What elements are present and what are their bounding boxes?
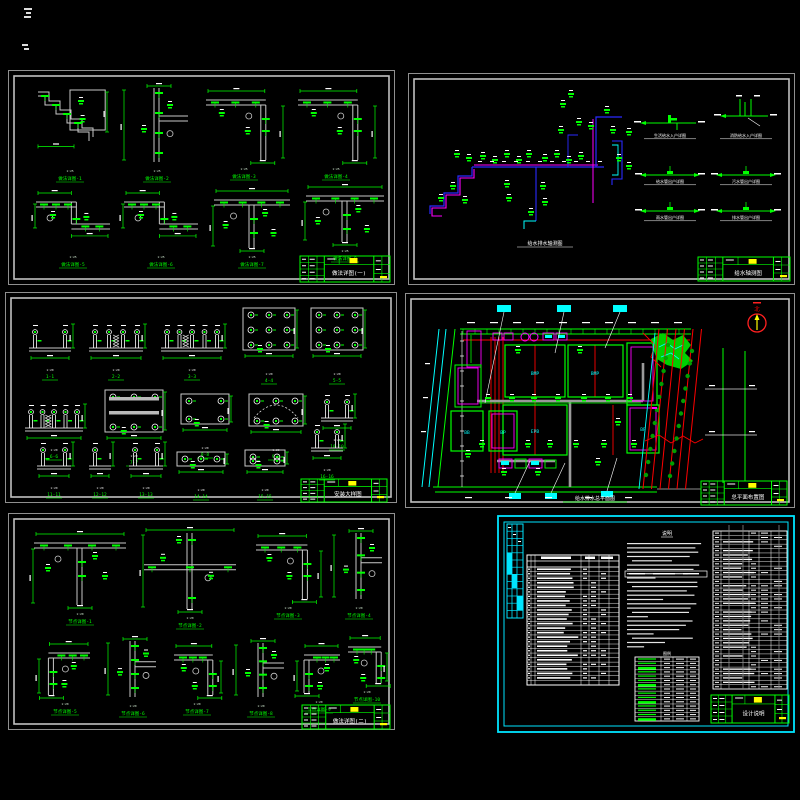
svg-text:节点详图-6: 节点详图-6 bbox=[121, 710, 145, 717]
detail-thumbnail: 1:25做法详图-5 bbox=[32, 190, 111, 268]
svg-text:污水管出户详图: 污水管出户详图 bbox=[732, 178, 760, 184]
svg-text:6-6: 6-6 bbox=[50, 454, 58, 460]
detail-thumbnail: 1:202-2 bbox=[89, 324, 147, 380]
detail-thumbnail: 1:25做法详图-4 bbox=[298, 88, 377, 180]
svg-text:BB: BB bbox=[464, 430, 470, 436]
svg-text:设计说明: 设计说明 bbox=[743, 710, 766, 718]
svg-text:1:25: 1:25 bbox=[341, 249, 348, 253]
svg-text:1:20: 1:20 bbox=[197, 488, 204, 492]
detail-thumbnail: 1:20节点详图-9 bbox=[294, 643, 341, 713]
detail-thumbnail: 1:208-8 bbox=[181, 394, 233, 458]
detail-thumbnail: 1:25做法详图-1 bbox=[38, 90, 109, 182]
detail-thumbnail: 1:20节点详图-8 bbox=[233, 638, 285, 717]
svg-text:EPB: EPB bbox=[531, 429, 539, 435]
pipe-mini-diagram: 消防给水入户详图 bbox=[714, 95, 777, 139]
title-block[interactable]: 设计说明 bbox=[711, 695, 789, 723]
sheet-design-notes[interactable]: 说明图例设计说明 bbox=[498, 516, 794, 732]
svg-text:BMP: BMP bbox=[591, 371, 599, 377]
svg-text:1:20: 1:20 bbox=[76, 612, 83, 616]
sheet-structural-details-2[interactable]: 1:20节点详图-11:20节点详图-21:20节点详图-31:20节点详图-4… bbox=[9, 514, 395, 730]
svg-text:1:20: 1:20 bbox=[363, 690, 370, 694]
detail-thumbnail: 1:207-7 bbox=[105, 390, 167, 466]
legend-table: 图例 bbox=[635, 650, 699, 721]
svg-text:给水管出户详图: 给水管出户详图 bbox=[656, 178, 684, 184]
svg-text:1:20: 1:20 bbox=[333, 372, 340, 376]
svg-text:1:20: 1:20 bbox=[201, 446, 208, 450]
svg-text:北: 北 bbox=[754, 305, 760, 313]
svg-text:12-12: 12-12 bbox=[93, 492, 107, 498]
svg-text:7-7: 7-7 bbox=[130, 460, 138, 466]
svg-text:做法详图-6: 做法详图-6 bbox=[149, 261, 173, 268]
detail-thumbnail: 1:20节点详图-5 bbox=[36, 641, 91, 715]
svg-text:1:20: 1:20 bbox=[112, 368, 119, 372]
svg-text:1:20: 1:20 bbox=[50, 448, 57, 452]
svg-text:做法详图-7: 做法详图-7 bbox=[240, 261, 264, 268]
svg-text:14-14: 14-14 bbox=[194, 494, 208, 500]
svg-text:BMP: BMP bbox=[531, 371, 539, 377]
detail-thumbnail: 1:20节点详图-4 bbox=[331, 528, 383, 619]
svg-text:节点详图-10: 节点详图-10 bbox=[354, 696, 380, 703]
pipe-mini-diagram: 污水管出户详图 bbox=[711, 166, 781, 185]
svg-text:5-5: 5-5 bbox=[333, 378, 341, 384]
detail-thumbnail: 1:25做法详图-6 bbox=[120, 190, 199, 268]
svg-text:1:25: 1:25 bbox=[248, 255, 255, 259]
schedule-table bbox=[713, 525, 787, 689]
svg-text:10-10: 10-10 bbox=[330, 444, 344, 450]
detail-thumbnail: 1:20节点详图-10 bbox=[348, 635, 390, 703]
svg-text:给水轴测图: 给水轴测图 bbox=[734, 269, 762, 277]
detail-thumbnail: 1:205-5 bbox=[311, 308, 367, 384]
revision-strip bbox=[507, 524, 523, 618]
svg-text:1:25: 1:25 bbox=[69, 255, 76, 259]
title-block[interactable]: 给水轴测图 bbox=[698, 257, 790, 281]
equipment-table bbox=[527, 555, 619, 685]
svg-text:1:20: 1:20 bbox=[129, 704, 136, 708]
svg-text:15-15: 15-15 bbox=[258, 494, 272, 500]
detail-thumbnail: 1:20节点详图-3 bbox=[256, 533, 323, 619]
svg-text:1:20: 1:20 bbox=[261, 488, 268, 492]
svg-text:排水管出户详图: 排水管出户详图 bbox=[732, 214, 760, 220]
detail-thumbnail: 1:25做法详图-7 bbox=[210, 188, 291, 268]
svg-text:1:25: 1:25 bbox=[157, 255, 164, 259]
title-block[interactable]: 安装大样图 bbox=[301, 479, 387, 502]
svg-text:做法详图(二): 做法详图(二) bbox=[333, 717, 367, 725]
svg-text:节点详图-1: 节点详图-1 bbox=[68, 618, 92, 625]
svg-text:1:20: 1:20 bbox=[142, 486, 149, 490]
detail-thumbnail: 1:204-4 bbox=[243, 308, 299, 384]
cad-workspace: 1:25做法详图-11:25做法详图-21:25做法详图-31:25做法详图-4… bbox=[0, 0, 800, 800]
svg-text:1-1: 1-1 bbox=[46, 374, 54, 380]
detail-thumbnail: 1:20节点详图-2 bbox=[140, 527, 237, 629]
svg-text:BP: BP bbox=[500, 430, 506, 436]
svg-text:2-2: 2-2 bbox=[112, 374, 120, 380]
svg-text:1:20: 1:20 bbox=[61, 702, 68, 706]
pipe-mini-diagram: 排水管出户详图 bbox=[711, 202, 781, 221]
svg-text:1:25: 1:25 bbox=[153, 169, 160, 173]
north-arrow-icon: 北 bbox=[748, 302, 766, 332]
svg-text:节点详图-5: 节点详图-5 bbox=[53, 708, 77, 715]
svg-text:做法详图-2: 做法详图-2 bbox=[145, 175, 169, 182]
svg-text:1:20: 1:20 bbox=[323, 468, 330, 472]
svg-text:1:25: 1:25 bbox=[66, 169, 73, 173]
detail-thumbnail: 1:206-6 bbox=[25, 404, 87, 460]
site-plan-drawing: BMPBMPEPBBBBPBP给水排水总平面图 bbox=[421, 305, 757, 502]
sheet-site-plan[interactable]: BMPBMPEPBBBBPBP给水排水总平面图北总平面布置图 bbox=[406, 294, 795, 508]
pipe-mini-diagram: 生活给水入户详图 bbox=[634, 115, 705, 139]
detail-thumbnail: 1:2015-15 bbox=[245, 450, 289, 500]
svg-text:11-11: 11-11 bbox=[47, 492, 61, 498]
svg-text:1:20: 1:20 bbox=[188, 368, 195, 372]
pipe-network: 给水排水轴测图 bbox=[430, 90, 632, 247]
svg-text:给水排水轴测图: 给水排水轴测图 bbox=[527, 240, 562, 247]
svg-text:做法详图-1: 做法详图-1 bbox=[58, 175, 82, 182]
svg-text:节点详图-3: 节点详图-3 bbox=[276, 612, 300, 619]
svg-text:1:25: 1:25 bbox=[332, 167, 339, 171]
svg-text:1:20: 1:20 bbox=[50, 486, 57, 490]
svg-text:1:20: 1:20 bbox=[186, 616, 193, 620]
svg-text:图例: 图例 bbox=[663, 650, 671, 656]
svg-text:做法详图-3: 做法详图-3 bbox=[232, 173, 256, 180]
svg-text:消防给水入户详图: 消防给水入户详图 bbox=[730, 132, 762, 138]
svg-text:13-13: 13-13 bbox=[139, 492, 153, 498]
detail-thumbnail: 1:2012-12 bbox=[89, 442, 115, 498]
svg-text:节点详图-4: 节点详图-4 bbox=[347, 612, 371, 619]
detail-thumbnail: 1:25做法详图-8 bbox=[302, 184, 385, 262]
svg-text:1:20: 1:20 bbox=[46, 368, 53, 372]
svg-text:节点详图-2: 节点详图-2 bbox=[178, 622, 202, 629]
svg-text:做法详图(一): 做法详图(一) bbox=[332, 269, 366, 277]
detail-thumbnail: 1:20节点详图-6 bbox=[105, 636, 157, 717]
detail-thumbnail: 1:2016-16 bbox=[311, 424, 347, 480]
svg-text:生活给水入户详图: 生活给水入户详图 bbox=[654, 132, 686, 138]
svg-text:1:20: 1:20 bbox=[96, 486, 103, 490]
detail-thumbnail: 1:203-3 bbox=[161, 324, 227, 380]
detail-thumbnail: 1:2014-14 bbox=[177, 452, 229, 500]
svg-text:1:25: 1:25 bbox=[240, 167, 247, 171]
detail-thumbnail: 1:25做法详图-2 bbox=[121, 83, 189, 182]
detail-thumbnail: 1:25做法详图-3 bbox=[206, 88, 285, 180]
svg-text:3-3: 3-3 bbox=[188, 374, 196, 380]
svg-text:1:20: 1:20 bbox=[315, 700, 322, 704]
detail-thumbnail: 1:20节点详图-7 bbox=[174, 643, 223, 715]
detail-thumbnail: 1:2010-10 bbox=[321, 394, 357, 450]
notes-text: 说明 bbox=[625, 530, 707, 647]
detail-thumbnail: 1:20节点详图-1 bbox=[30, 531, 127, 625]
pipe-mini-diagram: 给水管出户详图 bbox=[635, 166, 705, 185]
svg-text:1:20: 1:20 bbox=[355, 606, 362, 610]
svg-text:说明: 说明 bbox=[662, 530, 672, 537]
svg-text:1:20: 1:20 bbox=[257, 704, 264, 708]
detail-thumbnail: 1:2013-13 bbox=[129, 442, 167, 498]
svg-text:雨水管出户详图: 雨水管出户详图 bbox=[656, 214, 684, 220]
svg-text:4-4: 4-4 bbox=[265, 378, 273, 384]
svg-text:安装大样图: 安装大样图 bbox=[334, 490, 362, 498]
cad-canvas: 1:25做法详图-11:25做法详图-21:25做法详图-31:25做法详图-4… bbox=[0, 0, 800, 800]
sheet-fixture-details[interactable]: 1:201-11:202-21:203-31:204-41:205-51:206… bbox=[6, 293, 397, 503]
svg-text:做法详图-5: 做法详图-5 bbox=[61, 261, 85, 268]
svg-text:给水排水总平面图: 给水排水总平面图 bbox=[575, 495, 615, 502]
detail-thumbnail: 1:201-1 bbox=[29, 324, 75, 380]
svg-text:1:20: 1:20 bbox=[265, 372, 272, 376]
svg-text:1:20: 1:20 bbox=[193, 702, 200, 706]
svg-text:1:20: 1:20 bbox=[284, 606, 291, 610]
svg-text:做法详图-4: 做法详图-4 bbox=[324, 173, 348, 180]
pipe-mini-diagram: 雨水管出户详图 bbox=[635, 202, 705, 221]
svg-text:节点详图-7: 节点详图-7 bbox=[185, 708, 209, 715]
svg-text:节点详图-9: 节点详图-9 bbox=[307, 706, 331, 713]
sheet-structural-details-1[interactable]: 1:25做法详图-11:25做法详图-21:25做法详图-31:25做法详图-4… bbox=[9, 71, 395, 285]
sheet-pipe-axonometric[interactable]: 给水排水轴测图生活给水入户详图消防给水入户详图给水管出户详图污水管出户详图雨水管… bbox=[409, 74, 795, 285]
svg-text:节点详图-8: 节点详图-8 bbox=[249, 710, 273, 717]
svg-text:8-8: 8-8 bbox=[201, 452, 209, 458]
svg-text:总平面布置图: 总平面布置图 bbox=[731, 493, 765, 501]
